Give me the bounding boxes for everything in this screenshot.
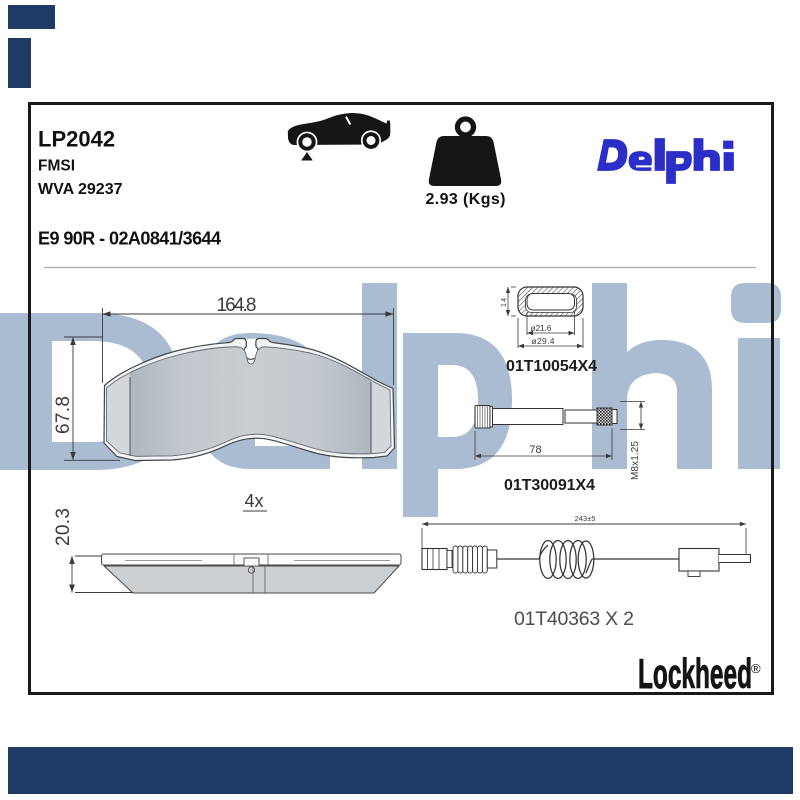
svg-text:14: 14 [501,298,508,307]
svg-text:ø29.4: ø29.4 [532,336,555,346]
svg-text:67.8: 67.8 [53,396,74,434]
svg-text:E9 90R - 02A0841/3644: E9 90R - 02A0841/3644 [38,229,221,249]
svg-text:243±5: 243±5 [575,514,596,523]
svg-text:78: 78 [529,444,541,456]
svg-text:164.8: 164.8 [217,295,257,316]
svg-text:01T40363 X 2: 01T40363 X 2 [514,608,634,630]
svg-text:Lockheed: Lockheed [638,650,752,697]
svg-text:4x: 4x [244,491,263,511]
svg-text:ø21.6: ø21.6 [531,323,552,333]
svg-text:®: ® [751,661,761,676]
svg-text:2.93 (Kgs): 2.93 (Kgs) [426,191,506,208]
svg-text:01T30091X4: 01T30091X4 [504,477,595,494]
svg-text:WVA 29237: WVA 29237 [38,181,123,198]
svg-text:FMSI: FMSI [38,158,75,175]
svg-text:LP2042: LP2042 [38,127,115,152]
svg-text:01T10054X4: 01T10054X4 [506,358,597,375]
svg-text:M8x1.25: M8x1.25 [630,441,641,480]
svg-text:20.3: 20.3 [53,508,74,546]
